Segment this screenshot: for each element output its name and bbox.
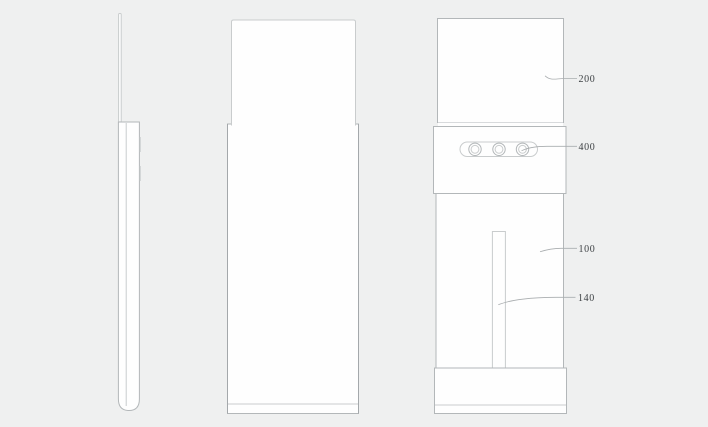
patent-figure-page: 200 400 100 140: [0, 0, 708, 427]
side-body: [118, 122, 139, 411]
ref-label-140: 140: [578, 293, 595, 304]
ref-label-400: 400: [579, 142, 596, 153]
ref-label-100: 100: [579, 244, 596, 255]
rear-camera-section: [434, 127, 567, 194]
drawing-canvas: 200 400 100 140: [0, 0, 708, 427]
front-body: [228, 124, 359, 414]
rear-slide-section-200: [438, 19, 564, 123]
side-view: [118, 14, 140, 411]
front-slide-display: [232, 20, 356, 126]
ref-label-200: 200: [579, 74, 596, 85]
rear-slot-140: [492, 232, 505, 369]
rear-bottom-section: [435, 368, 567, 414]
rear-view: [434, 19, 567, 414]
front-view: [228, 20, 359, 414]
side-slide-edge: [119, 14, 122, 123]
